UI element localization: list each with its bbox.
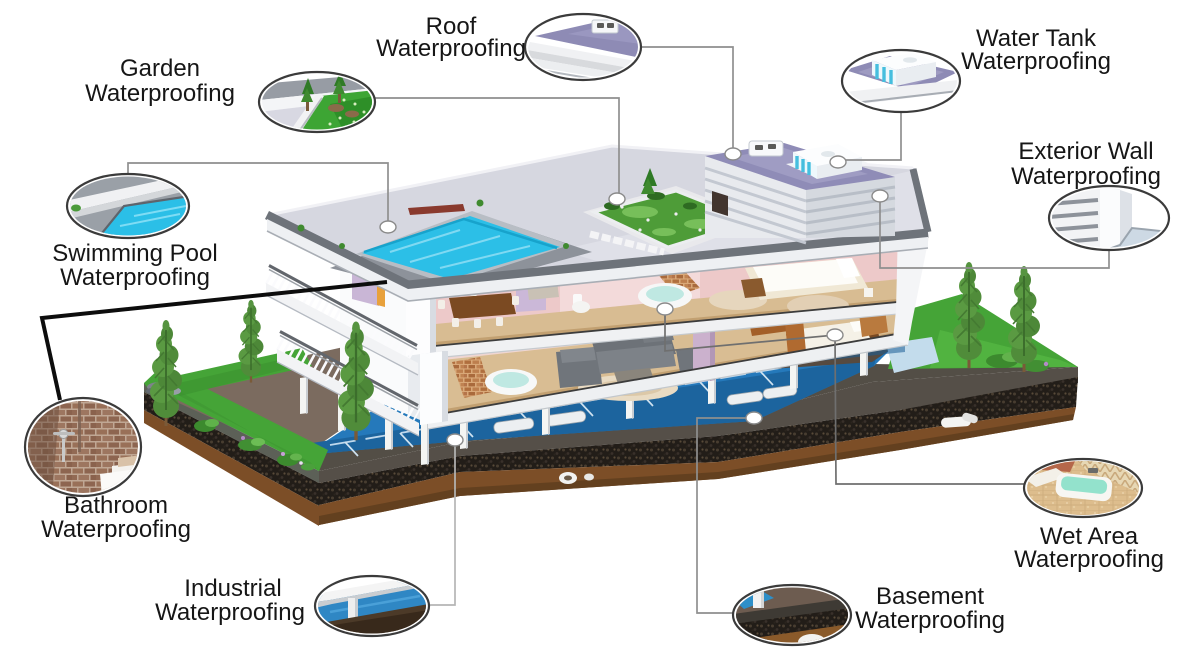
svg-text:Waterproofing: Waterproofing xyxy=(376,35,526,62)
svg-text:Waterproofing: Waterproofing xyxy=(155,599,305,626)
svg-text:Swimming Pool: Swimming Pool xyxy=(52,240,217,267)
svg-text:Bathroom: Bathroom xyxy=(64,492,168,519)
svg-text:Waterproofing: Waterproofing xyxy=(60,264,210,291)
svg-text:Basement: Basement xyxy=(876,583,984,610)
svg-text:Waterproofing: Waterproofing xyxy=(855,607,1005,634)
svg-text:Waterproofing: Waterproofing xyxy=(1011,163,1161,190)
svg-text:Garden: Garden xyxy=(120,55,200,82)
svg-text:Waterproofing: Waterproofing xyxy=(961,48,1111,75)
svg-text:Waterproofing: Waterproofing xyxy=(41,516,191,543)
svg-text:Industrial: Industrial xyxy=(184,575,281,602)
svg-text:Waterproofing: Waterproofing xyxy=(85,80,235,107)
svg-text:Waterproofing: Waterproofing xyxy=(1014,546,1164,573)
svg-text:Exterior Wall: Exterior Wall xyxy=(1018,138,1153,165)
